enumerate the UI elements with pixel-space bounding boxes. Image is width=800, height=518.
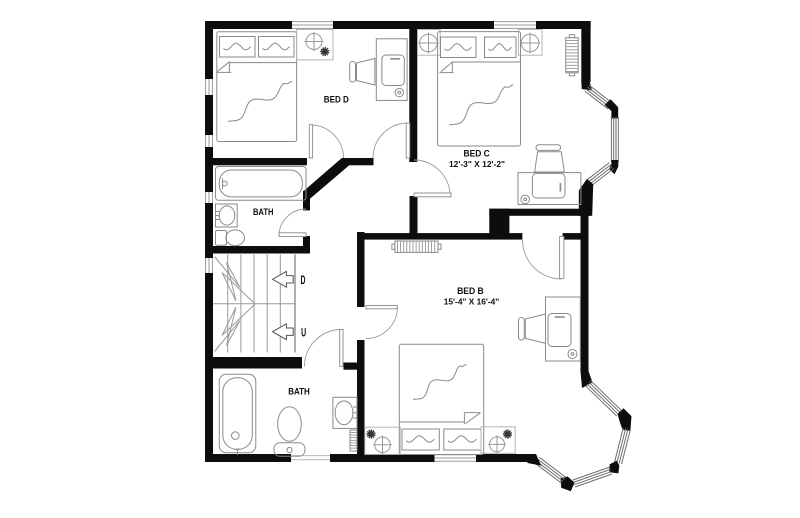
svg-text:BATH: BATH <box>288 386 310 397</box>
svg-text:D: D <box>301 273 306 287</box>
svg-text:U: U <box>301 325 306 339</box>
svg-text:12'-3" X 12'-2": 12'-3" X 12'-2" <box>449 159 505 169</box>
svg-text:BATH: BATH <box>253 207 274 218</box>
svg-text:BED D: BED D <box>324 95 349 106</box>
svg-text:BED C: BED C <box>464 149 490 160</box>
svg-text:15'-4" X 16'-4": 15'-4" X 16'-4" <box>444 296 499 306</box>
